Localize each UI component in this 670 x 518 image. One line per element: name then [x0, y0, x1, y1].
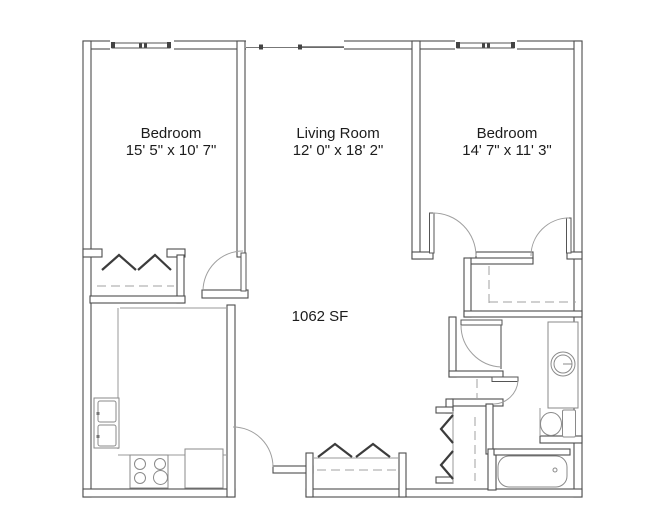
right-bedroom-closet-door — [531, 218, 571, 256]
room-dimensions-living-room: 12' 0" x 18' 2" — [293, 143, 384, 160]
window-right-bedroom — [455, 40, 517, 50]
room-label-bedroom-right: Bedroom — [477, 126, 538, 143]
room-label-living-room: Living Room — [296, 126, 379, 143]
room-dimensions-bedroom-left: 15' 5" x 10' 7" — [126, 143, 217, 160]
room-label-bedroom-left: Bedroom — [141, 126, 202, 143]
floor-plan: Bedroom 15' 5" x 10' 7" Living Room 12' … — [0, 0, 670, 518]
interior-walls — [83, 41, 582, 490]
exterior-walls — [83, 41, 582, 497]
range — [130, 455, 168, 488]
bathtub — [498, 456, 567, 487]
entry-door — [233, 427, 273, 467]
right-bedroom-door — [430, 213, 477, 256]
bifold-closet-doors — [102, 255, 453, 479]
toilet — [541, 410, 576, 437]
window-living-room — [246, 40, 344, 50]
room-dimensions-bedroom-right: 14' 7" x 11' 3" — [462, 143, 552, 160]
bathroom-door — [461, 320, 502, 369]
refrigerator — [185, 449, 223, 488]
window-left-bedroom — [110, 40, 174, 50]
total-area-label: 1062 SF — [292, 309, 349, 326]
closet-opening-lines — [313, 411, 453, 483]
floor-plan-drawing — [0, 0, 670, 518]
kitchen-counter — [118, 308, 227, 455]
kitchen-sink — [94, 398, 119, 448]
